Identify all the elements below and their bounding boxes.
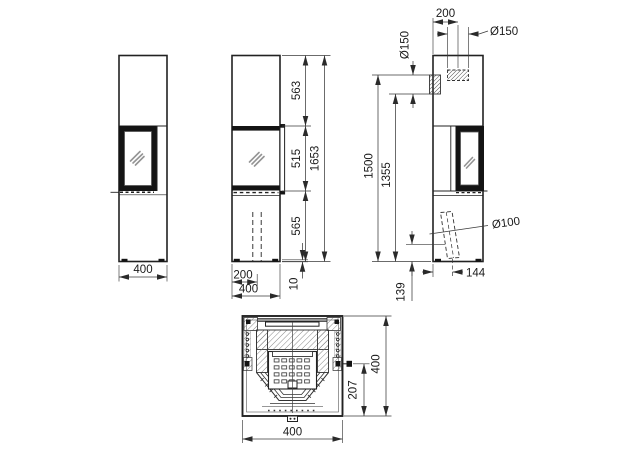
foot xyxy=(159,259,165,262)
front-view: 563 515 565 1653 200 400 10 xyxy=(232,56,331,300)
dim-air-inlet-offset-value: 144 xyxy=(466,268,486,280)
foot xyxy=(476,259,482,262)
dim-top-flue-offset: 200 xyxy=(433,8,458,68)
foot xyxy=(234,259,240,262)
dim-lower-height-value: 565 xyxy=(291,216,303,235)
foot xyxy=(435,259,441,262)
glass-reflection xyxy=(250,153,265,167)
dim-base-height: 10 xyxy=(282,243,308,290)
foot xyxy=(272,259,278,262)
dim-height-chain: 563 515 565 xyxy=(282,56,331,262)
dim-left-width-value: 400 xyxy=(133,264,152,276)
dim-front-width-value: 400 xyxy=(239,284,258,296)
dim-control-offset: 207 xyxy=(348,364,370,416)
rear-flue-outlet xyxy=(430,75,441,94)
foot xyxy=(122,259,128,262)
dim-door-height-value: 515 xyxy=(291,149,303,168)
dim-flue-offset-value: 200 xyxy=(233,270,252,282)
door-side-edge xyxy=(280,125,285,195)
dim-section-width-value: 400 xyxy=(283,427,302,439)
dim-rear-flue-dia: Ø150 xyxy=(372,31,429,108)
dim-left-width: 400 xyxy=(119,264,167,282)
dim-total-height-value: 1653 xyxy=(310,146,322,172)
dim-upper-height-value: 563 xyxy=(291,81,303,100)
dim-rear-flue-bottom-height-value: 1355 xyxy=(381,162,393,188)
bottom-connector xyxy=(288,416,298,422)
dim-rear-flue-bottom-height: 1355 xyxy=(381,94,396,262)
front-view-body xyxy=(232,56,280,262)
dim-top-flue-dia-value: Ø150 xyxy=(490,26,518,38)
dim-rear-flue-top-height: 1500 xyxy=(364,75,432,262)
dim-top-flue-dia: Ø150 xyxy=(437,26,518,68)
firebrick-right xyxy=(318,330,329,373)
right-side-view: 200 Ø150 Ø150 1500 1355 Ø100 xyxy=(364,8,521,302)
firebrick-left xyxy=(257,330,268,373)
stove-dimension-drawing: 400 563 515 565 xyxy=(0,0,624,460)
dim-top-flue-offset-value: 200 xyxy=(436,8,455,20)
left-side-view: 400 xyxy=(111,56,168,282)
right-view-door-glass xyxy=(461,132,479,185)
air-control-knob xyxy=(347,361,353,367)
dim-air-inlet-dia-value: Ø100 xyxy=(491,216,521,232)
dim-section-depth-value: 400 xyxy=(371,354,383,373)
dim-rear-flue-top-height-value: 1500 xyxy=(364,153,376,179)
section-view: 400 207 400 xyxy=(243,316,392,443)
door-bottom-band xyxy=(232,185,280,190)
technical-drawing-canvas: 400 563 515 565 xyxy=(0,0,624,460)
dim-control-offset-value: 207 xyxy=(348,380,360,399)
dim-air-inlet-height: 139 xyxy=(396,231,446,302)
dim-base-height-value: 10 xyxy=(289,278,301,291)
dim-rear-flue-dia-value: Ø150 xyxy=(400,31,412,59)
dim-total-height: 1653 xyxy=(310,56,325,262)
top-flue-outlet xyxy=(448,70,469,81)
dim-section-width: 400 xyxy=(243,420,343,443)
dim-air-inlet-height-value: 139 xyxy=(396,282,408,301)
door-top-band xyxy=(232,126,280,131)
